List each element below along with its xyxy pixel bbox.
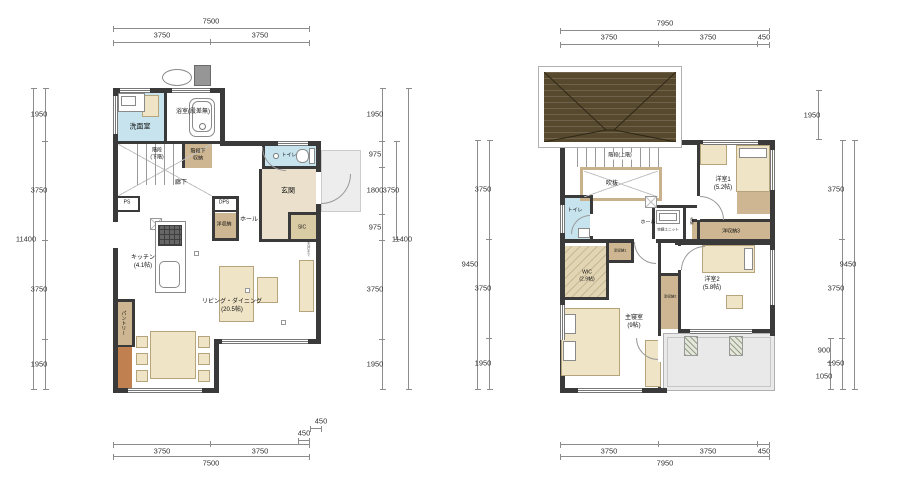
floor-marker [194, 251, 199, 256]
kitchen-sink [159, 261, 180, 288]
dim-label: 7950 [657, 459, 674, 468]
label-storage: 収納 [689, 217, 694, 224]
room2-pillow [744, 248, 753, 270]
dim-label: 7950 [657, 19, 674, 28]
window [120, 88, 150, 93]
dining-chair [198, 336, 210, 348]
label-toilet: トイレ [281, 153, 296, 160]
dim-label: 450 [758, 33, 771, 42]
label-toilet-2f: トイレ [567, 208, 582, 215]
aircon-unit-inner [659, 213, 677, 221]
bath-drain [199, 123, 206, 130]
window [222, 339, 308, 344]
label-living-dining: リビング・ダイニング (20.5帖) [202, 298, 262, 314]
window [113, 96, 118, 134]
wall [560, 297, 609, 300]
dim-label: 3750 [700, 447, 717, 456]
dining-chair [198, 370, 210, 382]
room1-door-swing [700, 196, 724, 220]
label-closet3: 洋収納3 [722, 229, 740, 236]
window [560, 305, 565, 340]
dim-tick [757, 41, 758, 47]
dim-label: 9450 [462, 260, 479, 269]
label-sic: SIC [298, 225, 306, 232]
tv-board [299, 260, 314, 312]
dim-label: 3750 [601, 447, 618, 456]
balcony-skylight [729, 336, 743, 356]
label-aircon-unit: 空調ユニット [657, 228, 679, 233]
label-stairs-2f: 階段(上階) [606, 153, 633, 160]
window [703, 140, 758, 145]
window [560, 205, 565, 233]
dim-label: 3750 [700, 33, 717, 42]
dim-tick [486, 338, 492, 339]
floor-plan-drawing: 洗面室 浴室(段差無) 階段 (下階) 階段下 収納 廊下 PS DPS 洋収納… [0, 0, 900, 481]
dining-table [150, 331, 196, 379]
dim-line [560, 44, 770, 45]
dim-label: 900 [818, 346, 831, 355]
floor-marker [281, 320, 286, 325]
room1-pillow [739, 148, 767, 158]
label-washroom: 洗面室 [130, 122, 151, 131]
label-master-bedroom: 主寝室 (9帖) [625, 314, 643, 330]
label-kitchen: キッチン (4.1帖) [131, 254, 155, 270]
dim-line [560, 30, 770, 31]
label-bath: 浴室(段差無) [176, 108, 210, 116]
master-pillow [563, 341, 576, 361]
window [172, 88, 210, 93]
dim-tick [486, 239, 492, 240]
duct-shaft-2f [645, 196, 657, 208]
dim-label: 3750 [475, 284, 492, 293]
wall [652, 205, 700, 208]
bedroom-door-swing [634, 242, 656, 264]
window [578, 388, 642, 393]
dining-chair [136, 370, 148, 382]
balcony-door-opening [658, 336, 661, 362]
label-pantry: パントリー [120, 311, 127, 336]
vanity-sink [121, 96, 136, 106]
dining-chair [198, 353, 210, 365]
dim-label: 1950 [828, 359, 845, 368]
label-closet: 洋収納 [216, 222, 231, 229]
label-under-stairs-storage: 階段下 収納 [190, 148, 205, 162]
label-dps: DPS [219, 200, 229, 207]
window [770, 150, 775, 190]
void-cross-lines [584, 171, 658, 197]
room1-closet [737, 192, 770, 214]
dim-tick [658, 41, 659, 47]
roof-hip-lines [544, 72, 676, 142]
window [770, 250, 775, 305]
wall [606, 243, 609, 299]
dim-label: 9450 [840, 260, 857, 269]
dining-chair [136, 353, 148, 365]
dim-line [560, 456, 770, 457]
toilet-bowl [296, 149, 309, 163]
dim-label: 1950 [475, 359, 492, 368]
room2-table [726, 295, 743, 309]
window [128, 388, 202, 393]
label-shelf: 天井まで [306, 242, 311, 256]
label-room1: 洋室1 (5.2帖) [714, 176, 732, 192]
wall [658, 239, 661, 336]
room2-door-swing [681, 246, 705, 270]
balcony-skylight [684, 336, 698, 356]
toilet2-door-opening [590, 214, 593, 236]
dim-tick [658, 441, 659, 447]
label-ps: PS [124, 200, 131, 207]
balcony-door-swing [636, 338, 658, 360]
closet2-floor [661, 276, 678, 329]
dim-tick [839, 239, 845, 240]
label-hallway: 廊下 [175, 179, 187, 187]
room1-desk [700, 144, 727, 165]
label-hall: ホール [240, 216, 258, 224]
label-closet1: 洋収納1 [614, 249, 627, 254]
dim-tick [839, 338, 845, 339]
label-wic: WIC (2.9帖) [579, 269, 594, 283]
balcony-parapet-line [667, 337, 771, 387]
dim-label: 3750 [828, 185, 845, 194]
label-hall-2f: ホール [640, 220, 655, 227]
label-void: 吹抜 [606, 180, 618, 188]
dim-label: 1950 [804, 111, 821, 120]
label-closet2: 洋収納2 [664, 295, 677, 300]
dim-label: 3750 [475, 185, 492, 194]
dining-chair [136, 336, 148, 348]
dim-line [560, 444, 770, 445]
floor-plan-2f: 階段(上階) 吹抜 トイレ ホール 空調ユニット 収納 洋室1 (5.2帖) 洋… [0, 0, 900, 481]
floor-marker [245, 288, 250, 293]
dim-label: 1050 [816, 372, 833, 381]
dim-label: 3750 [828, 284, 845, 293]
wall [683, 205, 686, 242]
label-room2: 洋室2 (5.8帖) [703, 276, 721, 292]
cooktop [158, 225, 182, 246]
dim-line [489, 140, 490, 390]
water-heater-tank [162, 69, 192, 86]
label-entry: 玄関 [281, 186, 295, 195]
dim-label: 3750 [601, 33, 618, 42]
side-door-opening [113, 222, 118, 248]
toilet-tank [309, 148, 315, 164]
balcony-sliding-window [690, 329, 752, 334]
label-stairs: 階段 (下階) [150, 147, 163, 161]
window [278, 141, 308, 146]
wall [661, 273, 678, 276]
